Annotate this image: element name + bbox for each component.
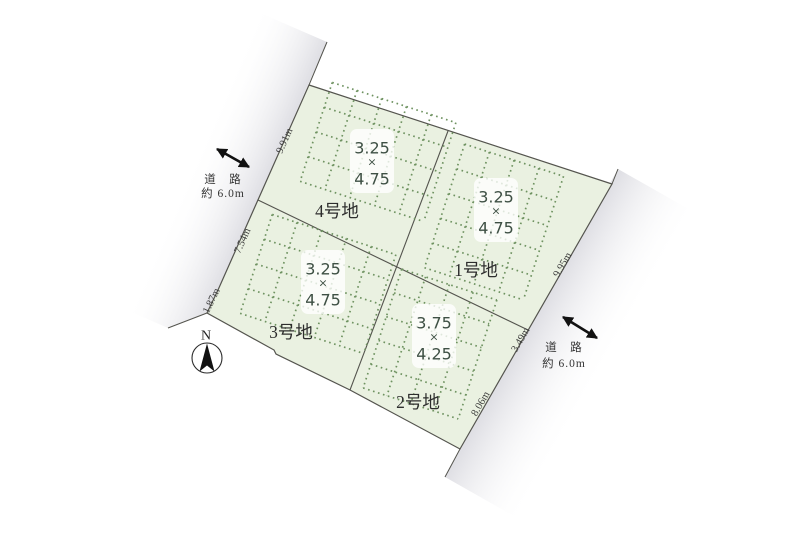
svg-text:×: × [491, 205, 500, 218]
lot3-name: 3号地 [269, 322, 313, 342]
svg-text:×: × [367, 156, 376, 169]
road-label-east-line2: 約 6.0m [542, 356, 586, 370]
lot2-dimension-label: 3.75 × 4.25 [412, 304, 456, 368]
road-label-west-line1: 道 路 [204, 172, 242, 186]
svg-text:×: × [429, 331, 438, 344]
compass-n-label: N [201, 329, 211, 344]
road-label-west-line2: 約 6.0m [201, 186, 245, 200]
svg-text:×: × [318, 277, 327, 290]
lot1-name: 1号地 [454, 260, 498, 280]
svg-text:4.75: 4.75 [478, 219, 514, 238]
svg-text:4.75: 4.75 [305, 291, 341, 310]
road-label-east-line1: 道 路 [545, 340, 583, 354]
plot-subdivision-diagram: 3.25 × 4.75 3.25 × 4.75 3.25 × 4.75 3.75… [0, 0, 801, 534]
svg-text:4.25: 4.25 [416, 345, 452, 364]
lot3-dimension-label: 3.25 × 4.75 [301, 250, 345, 314]
lot2-name: 2号地 [396, 392, 440, 412]
lot4-name: 4号地 [315, 201, 359, 221]
lot1-dimension-label: 3.25 × 4.75 [474, 178, 518, 242]
lot4-dimension-label: 3.25 × 4.75 [350, 129, 394, 193]
svg-text:4.75: 4.75 [354, 170, 390, 189]
north-compass-icon: N [192, 329, 222, 374]
diagram-canvas: 3.25 × 4.75 3.25 × 4.75 3.25 × 4.75 3.75… [0, 0, 801, 534]
